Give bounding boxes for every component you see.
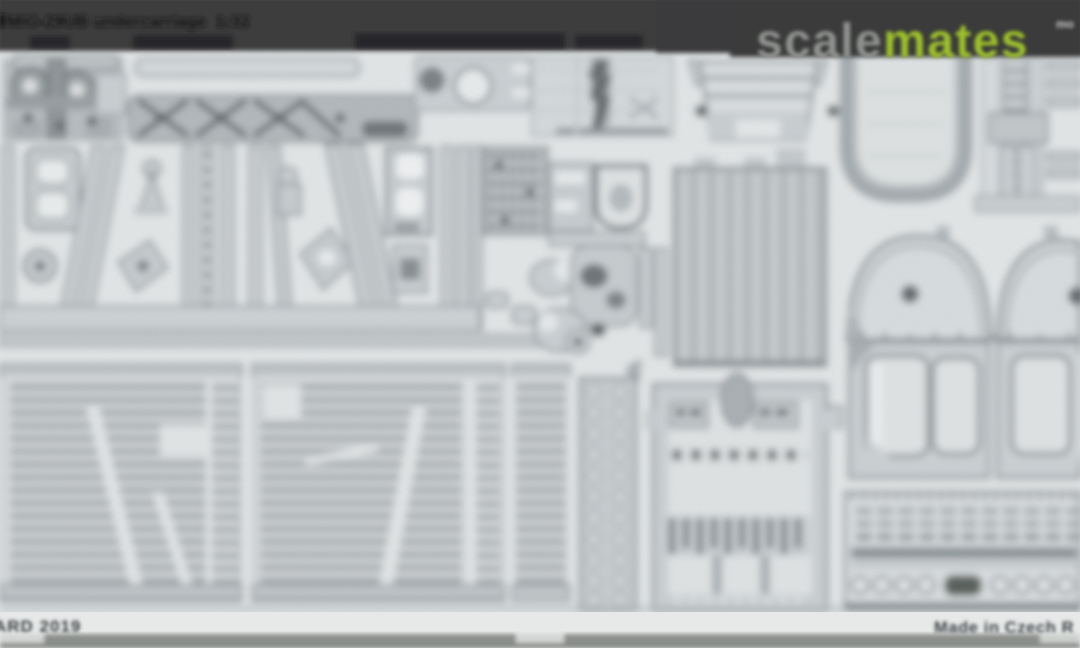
svg-text:scalemates: scalemates	[756, 15, 1029, 68]
svg-text:MiG-29UB undercarriage 1:32: MiG-29UB undercarriage 1:32	[7, 12, 250, 31]
svg-text:ARD 2019: ARD 2019	[0, 617, 81, 636]
svg-text:mo: mo	[1056, 17, 1074, 31]
